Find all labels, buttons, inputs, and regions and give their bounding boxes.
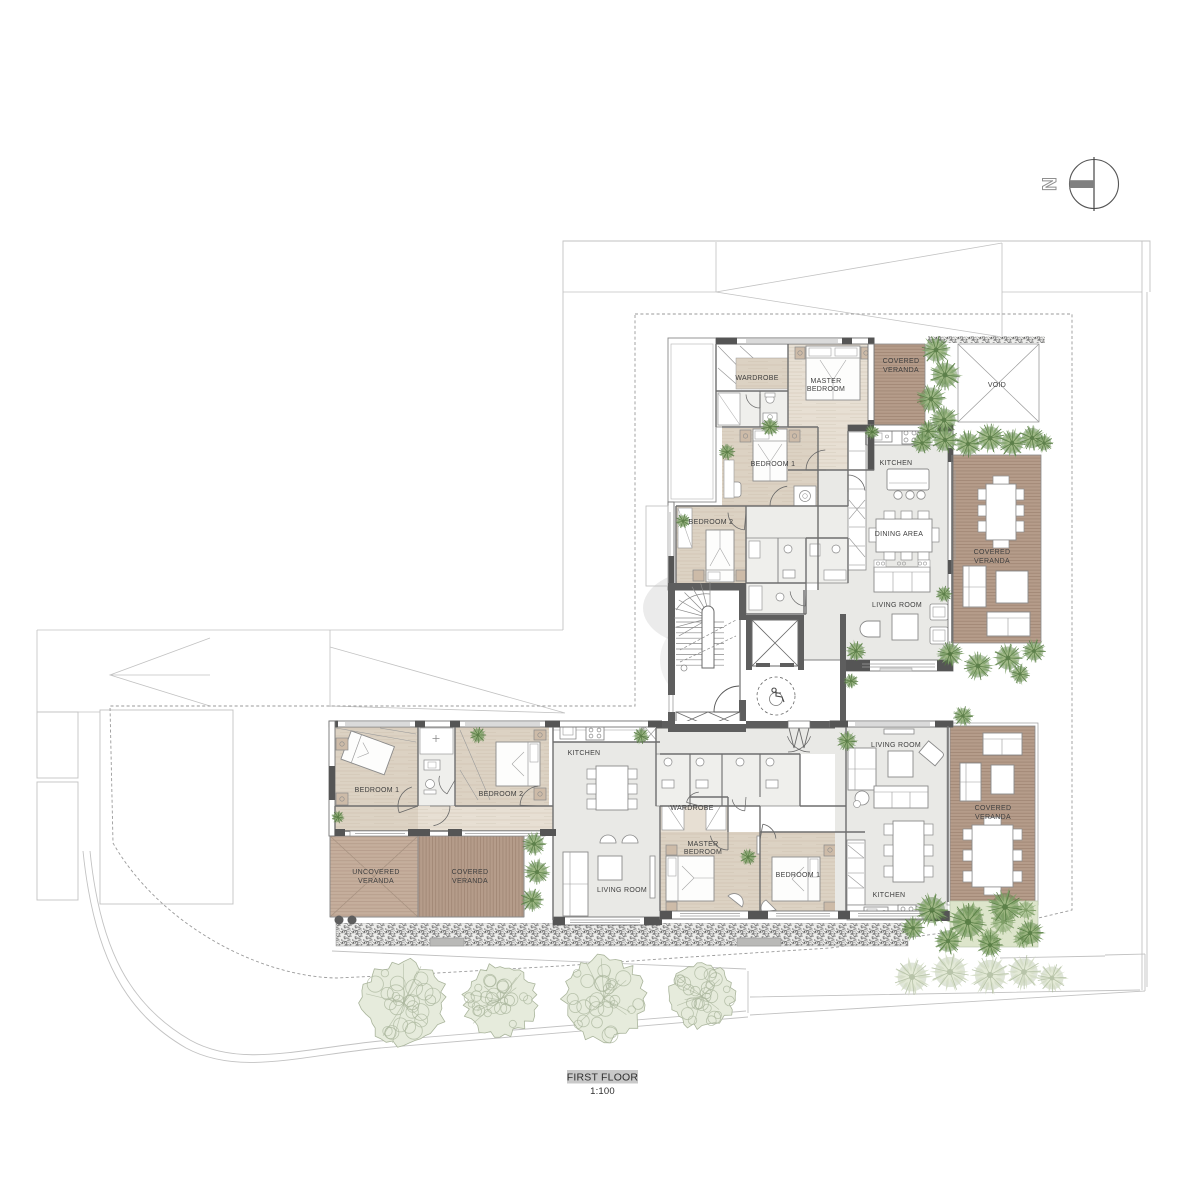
svg-text:LIVING ROOM: LIVING ROOM [872,602,922,609]
svg-text:N: N [1040,177,1061,191]
svg-text:COVERED: COVERED [974,549,1011,556]
svg-text:VERANDA: VERANDA [883,367,919,374]
svg-text:WARDROBE: WARDROBE [670,805,713,812]
svg-text:VERANDA: VERANDA [358,878,394,885]
svg-text:BEDROOM: BEDROOM [684,849,722,856]
svg-text:KITCHEN: KITCHEN [873,892,906,899]
svg-text:KITCHEN: KITCHEN [568,750,601,757]
svg-text:BEDROOM 1: BEDROOM 1 [751,461,796,468]
svg-text:LIVING ROOM: LIVING ROOM [597,887,647,894]
svg-text:1:100: 1:100 [590,1086,615,1097]
svg-text:MASTER: MASTER [688,841,719,848]
svg-text:LIVING ROOM: LIVING ROOM [871,742,921,749]
svg-text:BEDROOM 1: BEDROOM 1 [776,872,821,879]
svg-text:COVERED: COVERED [452,869,489,876]
svg-text:DINING AREA: DINING AREA [875,531,923,538]
svg-text:UNCOVERED: UNCOVERED [352,869,399,876]
svg-text:BEDROOM 2: BEDROOM 2 [479,791,524,798]
svg-text:COVERED: COVERED [883,358,920,365]
svg-text:WARDROBE: WARDROBE [735,375,778,382]
svg-text:KITCHEN: KITCHEN [880,460,913,467]
svg-text:FIRST FLOOR: FIRST FLOOR [567,1072,639,1084]
svg-text:BEDROOM: BEDROOM [807,386,845,393]
svg-text:BEDROOM 2: BEDROOM 2 [689,519,734,526]
svg-text:VERANDA: VERANDA [974,558,1010,565]
svg-text:COVERED: COVERED [975,805,1012,812]
svg-text:VOID: VOID [988,382,1006,389]
svg-text:BEDROOM 1: BEDROOM 1 [355,787,400,794]
svg-text:MASTER: MASTER [811,378,842,385]
svg-text:VERANDA: VERANDA [452,878,488,885]
svg-text:VERANDA: VERANDA [975,814,1011,821]
